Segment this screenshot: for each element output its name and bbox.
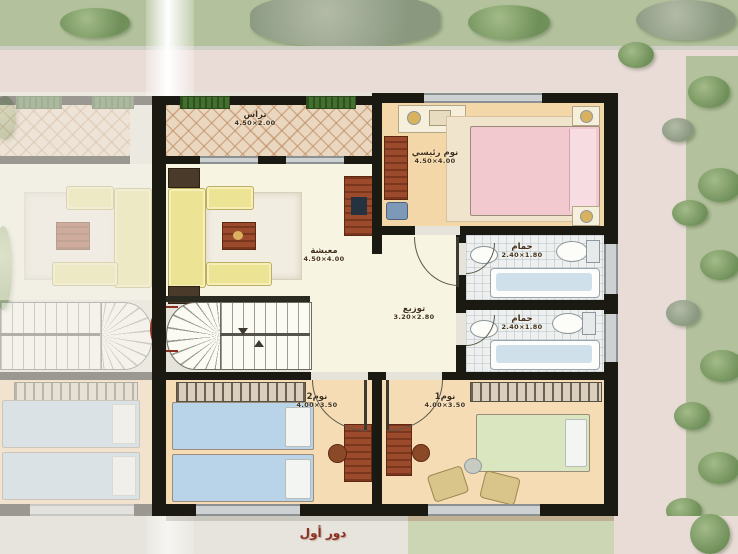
table-decor	[233, 231, 243, 240]
toilet	[556, 241, 588, 262]
label-living: معيشة 4.50×4.00	[278, 246, 370, 264]
wall	[166, 372, 311, 380]
room-dims: 4.50×4.00	[278, 256, 370, 264]
nightstand	[572, 106, 600, 126]
door-leaf	[364, 380, 367, 430]
chair	[412, 444, 430, 462]
lamp-icon	[580, 110, 593, 123]
desk	[344, 424, 372, 482]
label-bed2: نوم2 4.00×3.50	[282, 392, 352, 410]
door-leaf	[456, 237, 459, 287]
door-leaf	[386, 380, 389, 430]
window	[200, 156, 258, 164]
label-hall: توزيع 3.20×2.80	[372, 304, 456, 322]
pillow	[285, 459, 311, 499]
pillow	[285, 407, 311, 447]
label-bed1: نوم1 4.00×3.50	[410, 392, 480, 410]
wall	[166, 156, 382, 164]
bed-single	[476, 414, 590, 472]
tree-icon	[688, 76, 730, 108]
tree-icon	[250, 0, 440, 46]
floor-plan-image: تراس 4.50×2.00 معيشة 4.50×4.00 نوم رئيسي…	[0, 0, 738, 554]
tree-icon	[690, 514, 730, 554]
toilet-tank	[582, 312, 596, 335]
tree-icon	[674, 402, 710, 430]
planter-icon	[180, 96, 230, 109]
building-shadow	[166, 516, 614, 521]
label-terrace: تراس 4.50×2.00	[205, 110, 305, 128]
plan-caption: دور أول	[268, 526, 378, 540]
wall	[372, 380, 382, 504]
room-dims: 4.00×3.50	[282, 402, 352, 410]
label-bath-top: حمام 2.40×1.80	[494, 242, 550, 260]
window	[604, 314, 618, 362]
window	[428, 504, 540, 516]
bathtub-basin	[496, 273, 592, 291]
label-bath-bottom: حمام 2.40×1.80	[494, 314, 550, 332]
room-dims: 2.40×1.80	[494, 252, 550, 260]
coffee-table	[222, 222, 256, 250]
wall-thin	[166, 296, 310, 302]
tree-icon	[618, 42, 654, 68]
room-dims: 4.00×3.50	[410, 402, 480, 410]
pillow	[569, 129, 596, 211]
dresser-decor	[407, 111, 421, 125]
desk	[386, 424, 412, 476]
wall	[372, 226, 415, 235]
tree-icon	[698, 168, 738, 202]
tv-icon	[351, 197, 367, 215]
tree-icon	[666, 300, 700, 326]
bed-master	[470, 126, 600, 216]
bathtub-basin	[496, 345, 592, 363]
toilet	[552, 313, 584, 334]
stair-rail	[220, 333, 310, 336]
wardrobe	[470, 382, 602, 402]
bathtub	[490, 340, 600, 370]
window	[604, 244, 618, 294]
pillow	[565, 419, 587, 467]
stair-direction-arrow	[238, 328, 248, 335]
room-dims: 3.20×2.80	[372, 314, 456, 322]
stool	[386, 202, 408, 220]
wall-party	[152, 96, 166, 516]
window	[286, 156, 344, 164]
bed-twin	[172, 454, 314, 502]
toilet-tank	[586, 240, 600, 263]
window	[424, 93, 542, 103]
garden-bottom	[408, 516, 614, 554]
wall	[442, 372, 618, 380]
lamp-icon	[580, 210, 593, 223]
room-dims: 2.40×1.80	[494, 324, 550, 332]
tree-icon	[662, 118, 694, 142]
tree-icon	[700, 250, 738, 280]
wall	[466, 300, 618, 310]
fade-overlay	[0, 92, 152, 516]
tree-icon	[698, 452, 738, 484]
bathtub	[490, 268, 600, 298]
nightstand	[572, 206, 600, 226]
staircase	[220, 302, 312, 370]
chair	[328, 444, 347, 463]
stair-direction-arrow	[254, 340, 264, 347]
tree-icon	[672, 200, 708, 226]
tree-icon	[636, 0, 736, 40]
window	[196, 504, 300, 516]
sofa	[206, 262, 272, 286]
sofa	[168, 188, 206, 288]
tree-icon	[468, 5, 550, 40]
wall	[460, 226, 618, 235]
tree-icon	[700, 350, 738, 382]
room-dims: 4.50×2.00	[205, 120, 305, 128]
wall	[368, 372, 386, 380]
planter-icon	[306, 96, 356, 109]
label-master: نوم رئيسي 4.50×4.00	[390, 148, 480, 166]
round-table	[464, 458, 482, 474]
wardrobe-master	[384, 136, 408, 200]
sofa	[206, 186, 254, 210]
room-dims: 4.50×4.00	[390, 158, 480, 166]
side-table	[168, 168, 200, 188]
